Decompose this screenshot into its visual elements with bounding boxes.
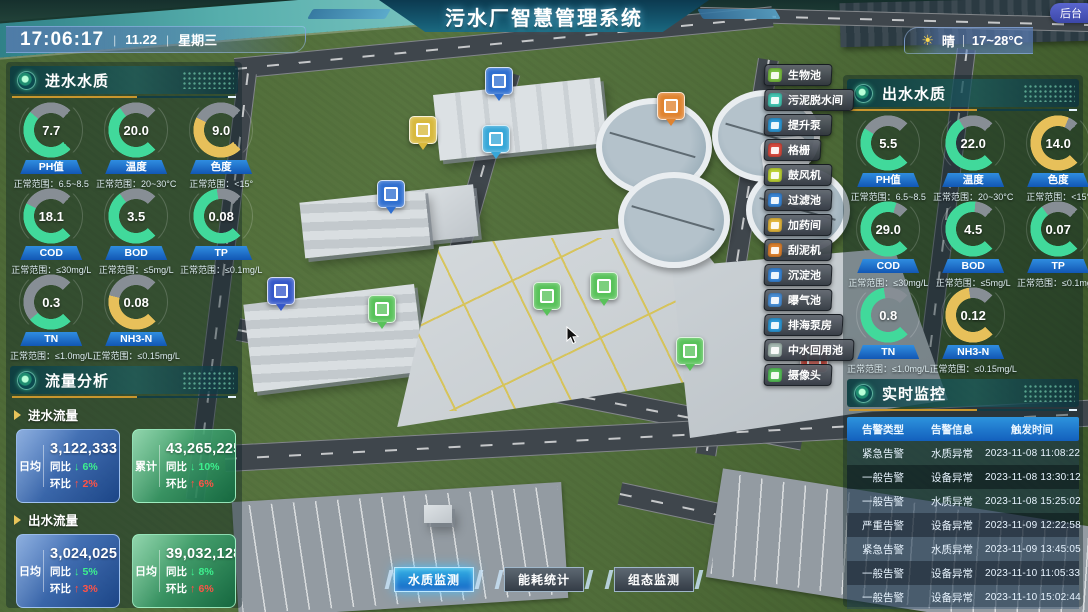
realtime-monitor-title: 实时监控 <box>882 383 946 404</box>
outlet-quality-header: 出水水质 <box>847 79 1079 107</box>
alarm-row[interactable]: 一般告警设备异常2023-11-10 15:02:44 <box>847 585 1079 609</box>
inlet-quality-panel: 进水水质 7.7PH值正常范围：6.5~8.520.0温度正常范围：20~30°… <box>6 62 242 608</box>
gauge-ring-wrap: 22.0 <box>945 115 1001 171</box>
flow-card-unit: t <box>117 445 120 455</box>
clock-bar: 17:06:17 | 11.22 | 星期三 <box>6 26 306 53</box>
gauge-PH值: 5.5PH值正常范围：6.5~8.5 <box>847 115 929 201</box>
gauge-温度: 20.0温度正常范围：20~30°C <box>92 102 179 188</box>
outlet-quality-title: 出水水质 <box>882 83 946 104</box>
alarm-info-cell: 设备异常 <box>919 518 985 533</box>
tab-能耗统计[interactable]: 能耗统计 <box>504 567 584 592</box>
gauge-value: 5.5 <box>860 115 916 171</box>
sludge-dewatering-icon <box>768 93 783 107</box>
clock-weekday: 星期三 <box>178 30 217 49</box>
gauge-label: 温度 <box>942 173 1004 187</box>
flow-card-value: 43,265,225 t <box>166 441 236 457</box>
gauge-COD: 29.0COD正常范围：≤30mg/L <box>847 201 929 287</box>
gauge-label: TN <box>857 345 919 359</box>
gauge-COD: 18.1COD正常范围：≤30mg/L <box>10 188 92 274</box>
dosing-room-icon <box>768 218 783 232</box>
sedimentation-pool-icon <box>768 268 783 282</box>
flow-card-body: 3,024,025 t同比↓5%环比↑3% <box>44 542 120 600</box>
facility-button-label: 刮泥机 <box>788 242 822 258</box>
facility-button-刮泥机[interactable]: 刮泥机 <box>763 239 832 261</box>
alarm-type-cell: 一般告警 <box>847 494 919 509</box>
gauge-label: 色度 <box>190 160 252 174</box>
facility-button-排海泵房[interactable]: 排海泵房 <box>763 314 843 336</box>
gauge-value: 0.07 <box>1030 201 1086 257</box>
alarm-type-cell: 严重告警 <box>847 518 919 533</box>
gauge-ring-wrap: 0.8 <box>860 287 916 343</box>
flow-card-日均[interactable]: 日均3,024,025 t同比↓5%环比↑3% <box>16 534 120 608</box>
filter-pool-marker[interactable] <box>267 277 295 305</box>
scraper-marker[interactable] <box>657 92 685 120</box>
metric-label: 同比 <box>166 459 187 474</box>
banner-wing-right <box>697 9 781 19</box>
gauge-ring-wrap: 29.0 <box>860 201 916 257</box>
aeration-pool-icon <box>768 293 783 307</box>
gauge-label: NH3-N <box>105 332 167 346</box>
weather-text: 晴 <box>942 31 955 50</box>
flow-card-row: 日均3,122,333 t同比↓6%环比↑2%累计43,265,225 t同比↓… <box>16 429 238 503</box>
lift-pump-marker[interactable] <box>482 125 510 153</box>
blower-marker[interactable] <box>409 116 437 144</box>
facility-button-提升泵[interactable]: 提升泵 <box>763 114 832 136</box>
gauge-ring-wrap: 14.0 <box>1030 115 1086 171</box>
facility-button-污泥脱水间[interactable]: 污泥脱水间 <box>763 89 854 111</box>
facility-button-label: 加药间 <box>788 217 822 233</box>
building <box>424 505 452 523</box>
metric-label: 同比 <box>50 459 71 474</box>
metric-label: 同比 <box>50 564 71 579</box>
inlet-quality-header: 进水水质 <box>10 66 238 94</box>
arrow-up-icon: ↑ <box>74 583 80 595</box>
sea-discharge-pump-icon <box>768 318 783 332</box>
gauge-label: TP <box>190 246 252 260</box>
gauge-label: COD <box>857 259 919 273</box>
facility-button-column: 生物池污泥脱水间提升泵格栅鼓风机过滤池加药间刮泥机沉淀池曝气池排海泵房中水回用池… <box>764 64 854 389</box>
flow-subsection-label: 出水流量 <box>14 510 238 529</box>
gauge-NH3-N: 0.08NH3-N正常范围：≤0.15mg/L <box>92 274 179 360</box>
metric-percent: 10% <box>199 461 220 473</box>
gauge-value: 4.5 <box>945 201 1001 257</box>
alarm-info-cell: 水质异常 <box>919 542 985 557</box>
metric-percent: 6% <box>199 583 214 595</box>
metric-percent: 6% <box>199 478 214 490</box>
tab-组态监测[interactable]: 组态监测 <box>614 567 694 592</box>
flow-card-unit: t <box>117 550 120 560</box>
alarm-time-cell: 2023-11-09 13:45:05 <box>985 544 1081 555</box>
bio-pool-icon <box>768 68 783 82</box>
alarm-type-cell: 一般告警 <box>847 470 919 485</box>
facility-button-加药间[interactable]: 加药间 <box>763 214 832 236</box>
alarm-time-cell: 2023-11-10 11:05:33 <box>985 568 1080 579</box>
header-underline <box>849 409 1077 411</box>
alarm-info-cell: 设备异常 <box>919 566 985 581</box>
gauge-ring-wrap: 0.08 <box>193 188 249 244</box>
clarifier-tank <box>618 172 730 268</box>
flow-card-value: 3,024,025 t <box>50 546 120 562</box>
gauge-normal-range: 正常范围：≤0.1mg/L <box>180 263 262 276</box>
flow-card-tag: 日均 <box>133 563 159 579</box>
alarm-info-cell: 设备异常 <box>919 470 985 485</box>
flow-card-日均[interactable]: 日均3,122,333 t同比↓6%环比↑2% <box>16 429 120 503</box>
gauge-label: BOD <box>942 259 1004 273</box>
flow-sections: 进水流量日均3,122,333 t同比↓6%环比↑2%累计43,265,225 … <box>10 405 238 608</box>
flow-card-row: 日均3,024,025 t同比↓5%环比↑3%日均39,032,128 t同比↓… <box>16 534 238 608</box>
gauge-label: NH3-N <box>942 345 1004 359</box>
header-dots-decor <box>182 371 234 389</box>
gauge-温度: 22.0温度正常范围：20~30°C <box>929 115 1016 201</box>
gauge-value: 0.08 <box>193 188 249 244</box>
metric-percent: 6% <box>83 461 98 473</box>
facility-button-沉淀池[interactable]: 沉淀池 <box>763 264 832 286</box>
alarm-column-header: 触发时间 <box>985 422 1079 437</box>
gauge-色度: 14.0色度正常范围：<15° <box>1017 115 1088 201</box>
bar-screen-icon <box>768 143 783 157</box>
tab-水质监测[interactable]: 水质监测 <box>394 567 474 592</box>
gauge-value: 0.3 <box>23 274 79 330</box>
gauge-normal-range: 正常范围：≤0.15mg/L <box>92 349 179 362</box>
alarm-time-cell: 2023-11-09 12:22:58 <box>985 520 1081 531</box>
flow-analysis-title: 流量分析 <box>45 370 109 391</box>
outlet-quality-panel: 出水水质 5.5PH值正常范围：6.5~8.522.0温度正常范围：20~30°… <box>843 75 1083 607</box>
water-reuse-pool-icon <box>768 343 783 357</box>
admin-button[interactable]: 后台 <box>1050 3 1088 23</box>
gauge-ring-wrap: 0.07 <box>1030 201 1086 257</box>
gauge-label: PH值 <box>857 173 919 187</box>
gauge-value: 0.8 <box>860 287 916 343</box>
clock-time: 17:06:17 <box>20 29 104 51</box>
mud-scraper-icon <box>768 243 783 257</box>
gauge-ring-wrap: 0.08 <box>108 274 164 330</box>
flow-subsection-label: 进水流量 <box>14 405 238 424</box>
alarm-type-cell: 一般告警 <box>847 566 919 581</box>
metric-percent: 8% <box>199 566 214 578</box>
metric-percent: 3% <box>83 583 98 595</box>
gauge-value: 3.5 <box>108 188 164 244</box>
header-underline <box>12 96 236 98</box>
alarm-info-cell: 设备异常 <box>919 590 985 605</box>
flow-card-body: 43,265,225 t同比↓10%环比↑6% <box>160 437 236 495</box>
gauge-ring-wrap: 0.3 <box>23 274 79 330</box>
facility-button-label: 生物池 <box>788 67 822 83</box>
alarm-time-cell: 2023-11-10 15:02:44 <box>985 592 1081 603</box>
flow-card-value: 39,032,128 t <box>166 546 236 562</box>
facility-button-过滤池[interactable]: 过滤池 <box>763 189 832 211</box>
camera-marker-2[interactable] <box>676 337 704 365</box>
gauge-value: 29.0 <box>860 201 916 257</box>
alarm-info-cell: 水质异常 <box>919 446 985 461</box>
gauge-value: 0.12 <box>945 287 1001 343</box>
gauge-BOD: 3.5BOD正常范围：≤5mg/L <box>92 188 179 274</box>
alarm-row[interactable]: 严重告警设备异常2023-11-09 12:22:58 <box>847 513 1079 537</box>
lift-pump-icon <box>768 118 783 132</box>
gauge-ring-wrap: 5.5 <box>860 115 916 171</box>
metric-percent: 5% <box>83 566 98 578</box>
parking-lot <box>232 482 568 612</box>
facility-button-label: 沉淀池 <box>788 267 822 283</box>
blower-fan-icon <box>768 168 783 182</box>
facility-button-label: 格栅 <box>788 142 811 158</box>
facility-button-label: 排海泵房 <box>788 317 833 333</box>
reuse-pool-marker[interactable] <box>368 295 396 323</box>
alarm-column-header: 告警类型 <box>847 422 919 437</box>
facility-button-label: 曝气池 <box>788 292 822 308</box>
gauge-value: 22.0 <box>945 115 1001 171</box>
sun-icon: ☀ <box>921 33 934 49</box>
metric-label: 环比 <box>166 581 187 596</box>
camera-icon <box>768 368 783 382</box>
metric-label: 同比 <box>166 564 187 579</box>
gauge-value: 9.0 <box>193 102 249 158</box>
facility-button-label: 污泥脱水间 <box>788 92 844 108</box>
header-underline <box>12 396 236 398</box>
alarm-type-cell: 紧急告警 <box>847 446 919 461</box>
gauge-label: TN <box>20 332 82 346</box>
gauge-value: 14.0 <box>1030 115 1086 171</box>
camera-marker-1[interactable] <box>590 272 618 300</box>
flow-metric-环比: 环比↑6% <box>166 476 236 491</box>
arrow-down-icon: ↓ <box>190 461 196 473</box>
arrow-down-icon: ↓ <box>74 461 80 473</box>
arrow-up-icon: ↑ <box>190 583 196 595</box>
flow-metric-同比: 同比↓8% <box>166 564 236 579</box>
gauge-ring-wrap: 4.5 <box>945 201 1001 257</box>
weather-bar: ☀ 晴 17~28°C <box>904 27 1033 54</box>
dashboard-root: 污水厂智慧管理系统 17:06:17 | 11.22 | 星期三 ☀ 晴 17~… <box>0 0 1088 612</box>
flow-card-body: 39,032,128 t同比↓8%环比↑6% <box>160 542 236 600</box>
gauge-NH3-N: 0.12NH3-N正常范围：≤0.15mg/L <box>929 287 1016 373</box>
gauge-TN: 0.3TN正常范围：≤1.0mg/L <box>10 274 92 360</box>
alarm-info-cell: 水质异常 <box>919 494 985 509</box>
gauge-label: BOD <box>105 246 167 260</box>
flow-card-累计[interactable]: 累计43,265,225 t同比↓10%环比↑6% <box>132 429 236 503</box>
gauge-色度: 9.0色度正常范围：<15° <box>180 102 262 188</box>
gauge-label: 色度 <box>1027 173 1088 187</box>
facility-button-生物池[interactable]: 生物池 <box>763 64 832 86</box>
flow-metric-环比: 环比↑3% <box>50 581 120 596</box>
panel-bullet-icon <box>17 71 36 90</box>
gauge-PH值: 7.7PH值正常范围：6.5~8.5 <box>10 102 92 188</box>
bio-pool-marker[interactable] <box>533 282 561 310</box>
flow-metric-同比: 同比↓6% <box>50 459 120 474</box>
flow-metric-环比: 环比↑2% <box>50 476 120 491</box>
arrow-up-icon: ↑ <box>190 478 196 490</box>
panel-bullet-icon <box>854 384 873 403</box>
gauge-ring-wrap: 18.1 <box>23 188 79 244</box>
facility-button-曝气池[interactable]: 曝气池 <box>763 289 832 311</box>
metric-percent: 2% <box>83 478 98 490</box>
flow-card-日均[interactable]: 日均39,032,128 t同比↓8%环比↑6% <box>132 534 236 608</box>
facility-button-label: 过滤池 <box>788 192 822 208</box>
flow-card-tag: 累计 <box>133 458 159 474</box>
arrow-up-icon: ↑ <box>74 478 80 490</box>
page-title: 污水厂智慧管理系统 <box>445 2 643 31</box>
panel-bullet-icon <box>17 371 36 390</box>
divider <box>963 35 964 47</box>
gauge-value: 18.1 <box>23 188 79 244</box>
header-dots-decor <box>182 71 234 89</box>
gauge-BOD: 4.5BOD正常范围：≤5mg/L <box>929 201 1016 287</box>
facility-button-label: 中水回用池 <box>788 342 844 358</box>
alarm-table: 告警类型告警信息触发时间紧急告警水质异常2023-11-08 11:08:22一… <box>847 417 1079 609</box>
banner-wing-left <box>307 9 391 19</box>
mouse-cursor <box>566 326 580 346</box>
realtime-monitor-header: 实时监控 <box>847 379 1079 407</box>
arrow-down-icon: ↓ <box>74 566 80 578</box>
flow-card-body: 3,122,333 t同比↓6%环比↑2% <box>44 437 120 495</box>
alarm-row[interactable]: 紧急告警水质异常2023-11-08 11:08:22 <box>847 441 1079 465</box>
sedimentation-marker[interactable] <box>485 67 513 95</box>
alarm-row[interactable]: 一般告警水质异常2023-11-08 15:25:02 <box>847 489 1079 513</box>
header-underline <box>849 109 1077 111</box>
facility-button-label: 鼓风机 <box>788 167 822 183</box>
alarm-time-cell: 2023-11-08 11:08:22 <box>985 448 1080 459</box>
temperature-range: 17~28°C <box>972 33 1023 48</box>
gauge-normal-range: 正常范围：≤1.0mg/L <box>10 349 92 362</box>
gauge-TN: 0.8TN正常范围：≤1.0mg/L <box>847 287 929 373</box>
gauge-normal-range: 正常范围：≤0.15mg/L <box>929 362 1016 375</box>
divider: | <box>113 33 116 47</box>
gauge-label: PH值 <box>20 160 82 174</box>
flow-metric-环比: 环比↑6% <box>166 581 236 596</box>
alarm-table-header: 告警类型告警信息触发时间 <box>847 417 1079 441</box>
flow-card-tag: 日均 <box>17 563 43 579</box>
clock-date: 11.22 <box>125 32 157 47</box>
facility-button-鼓风机[interactable]: 鼓风机 <box>763 164 832 186</box>
alarm-time-cell: 2023-11-08 15:25:02 <box>985 496 1081 507</box>
gauge-ring-wrap: 7.7 <box>23 102 79 158</box>
bottom-tab-bar: 水质监测能耗统计组态监测 <box>394 567 694 592</box>
flow-metric-同比: 同比↓5% <box>50 564 120 579</box>
alarm-row[interactable]: 紧急告警水质异常2023-11-09 13:45:05 <box>847 537 1079 561</box>
alarm-type-cell: 一般告警 <box>847 590 919 605</box>
alarm-column-header: 告警信息 <box>919 422 985 437</box>
gauge-label: 温度 <box>105 160 167 174</box>
gauge-label: TP <box>1027 259 1088 273</box>
facility-button-label: 提升泵 <box>788 117 822 133</box>
gauge-value: 7.7 <box>23 102 79 158</box>
gauge-label: COD <box>20 246 82 260</box>
facility-button-摄像头[interactable]: 摄像头 <box>763 364 832 386</box>
alarm-row[interactable]: 一般告警设备异常2023-11-08 13:30:12 <box>847 465 1079 489</box>
flow-metric-同比: 同比↓10% <box>166 459 236 474</box>
flow-analysis-header: 流量分析 <box>10 366 238 394</box>
gauge-normal-range: 正常范围：≤1.0mg/L <box>847 362 929 375</box>
gauge-TP: 0.07TP正常范围：≤0.1mg/L <box>1017 201 1088 287</box>
filter-pool-icon <box>768 193 783 207</box>
header-dots-decor <box>1023 384 1075 402</box>
gauge-TP: 0.08TP正常范围：≤0.1mg/L <box>180 188 262 274</box>
flow-card-value: 3,122,333 t <box>50 441 120 457</box>
gauge-ring-wrap: 9.0 <box>193 102 249 158</box>
gauge-value: 0.08 <box>108 274 164 330</box>
facility-button-格栅[interactable]: 格栅 <box>763 139 821 161</box>
divider: | <box>166 33 169 47</box>
header-dots-decor <box>1023 84 1075 102</box>
metric-label: 环比 <box>50 476 71 491</box>
metric-label: 环比 <box>50 581 71 596</box>
arrow-down-icon: ↓ <box>190 566 196 578</box>
alarm-row[interactable]: 一般告警设备异常2023-11-10 11:05:33 <box>847 561 1079 585</box>
facility-button-label: 摄像头 <box>788 367 822 383</box>
alarm-time-cell: 2023-11-08 13:30:12 <box>985 472 1081 483</box>
metric-label: 环比 <box>166 476 187 491</box>
gauge-ring-wrap: 20.0 <box>108 102 164 158</box>
panel-bullet-icon <box>854 84 873 103</box>
alarm-type-cell: 紧急告警 <box>847 542 919 557</box>
aeration-marker[interactable] <box>377 180 405 208</box>
app-title-banner: 污水厂智慧管理系统 <box>304 0 784 32</box>
gauge-value: 20.0 <box>108 102 164 158</box>
inlet-gauge-grid: 7.7PH值正常范围：6.5~8.520.0温度正常范围：20~30°C9.0色… <box>10 102 238 360</box>
gauge-ring-wrap: 0.12 <box>945 287 1001 343</box>
outlet-gauge-grid: 5.5PH值正常范围：6.5~8.522.0温度正常范围：20~30°C14.0… <box>847 115 1079 373</box>
gauge-normal-range: 正常范围：≤0.1mg/L <box>1017 276 1088 289</box>
facility-button-中水回用池[interactable]: 中水回用池 <box>763 339 854 361</box>
gauge-ring-wrap: 3.5 <box>108 188 164 244</box>
flow-card-tag: 日均 <box>17 458 43 474</box>
inlet-quality-title: 进水水质 <box>45 70 109 91</box>
